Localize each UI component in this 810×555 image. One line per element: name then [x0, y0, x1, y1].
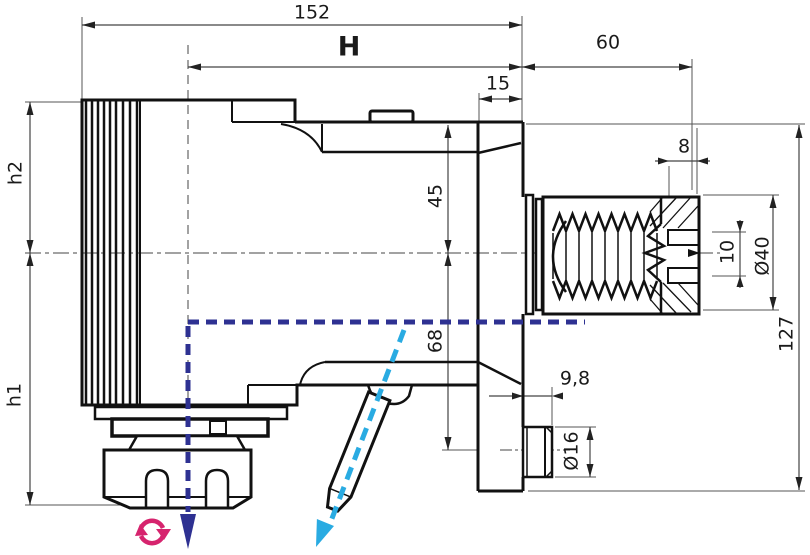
- dim-10-label: 10: [719, 240, 738, 264]
- dim-h-label: H: [338, 34, 361, 61]
- diagonal-arrow-icon: [316, 519, 334, 547]
- collet-slot: [146, 470, 168, 507]
- dim-60-label: 60: [596, 34, 620, 53]
- flange: [478, 122, 523, 491]
- dim-h1-label: h1: [6, 383, 25, 407]
- collet-nut: [95, 407, 287, 508]
- down-arrow-icon: [180, 514, 196, 549]
- dim-45-label: 45: [427, 184, 446, 208]
- collet-slot: [206, 470, 228, 507]
- drawing-canvas: [0, 0, 810, 555]
- top-key-bump: [370, 111, 413, 122]
- rotation-icon: [135, 521, 171, 543]
- dim-dia16-label: Ø16: [563, 431, 582, 470]
- technical-drawing-page: 152 H 60 15 8 45 68 h2 h1 9,8 Ø16 10 Ø40…: [0, 0, 810, 555]
- dim-127-label: 127: [778, 316, 797, 352]
- dim-9-8-label: 9,8: [560, 370, 590, 389]
- clamp-pin: [323, 385, 412, 514]
- threaded-shaft: [526, 195, 700, 314]
- dim-8-label: 8: [678, 138, 690, 157]
- dim-15-label: 15: [486, 75, 510, 94]
- coolant-port: [523, 427, 552, 477]
- dim-dia40-label: Ø40: [754, 236, 773, 275]
- dim-68-label: 68: [427, 329, 446, 353]
- dim-152-label: 152: [294, 4, 330, 23]
- dim-h2-label: h2: [7, 161, 26, 185]
